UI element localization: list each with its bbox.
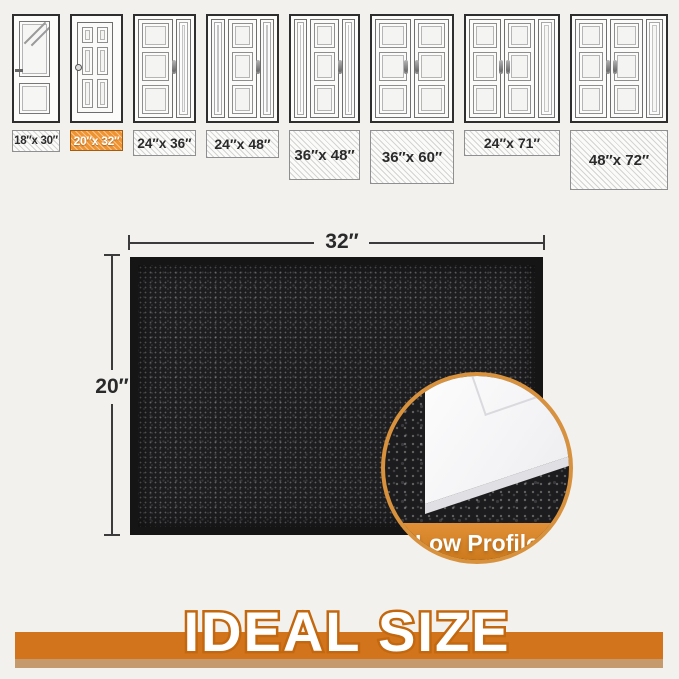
leaf [310, 19, 339, 118]
panel [614, 52, 638, 81]
mat-width-label: 32″ [313, 230, 371, 254]
panel [232, 85, 254, 114]
side [646, 19, 663, 118]
panel [142, 85, 169, 114]
cell [97, 47, 108, 76]
handle [506, 60, 510, 72]
leaf [138, 19, 173, 118]
handle [338, 60, 342, 72]
side [211, 19, 225, 118]
handle [172, 60, 176, 72]
panel [314, 52, 335, 81]
door-illustration [70, 14, 123, 123]
panel [473, 85, 497, 114]
side [294, 19, 307, 118]
leaf [469, 19, 501, 118]
handle [256, 60, 260, 72]
panel [314, 23, 335, 48]
depth-dim-tick-bottom [104, 534, 120, 536]
width-dim-tick-left [128, 235, 130, 250]
panel [614, 23, 638, 48]
cell [82, 47, 93, 76]
mat-size-label: 24″x 48″ [206, 130, 279, 158]
cell [97, 79, 108, 108]
side [176, 19, 191, 118]
cell [97, 27, 108, 43]
sinner [214, 22, 222, 115]
handle [404, 60, 408, 72]
sinner [649, 22, 660, 115]
handle [606, 60, 610, 72]
drow [135, 16, 194, 121]
depth-dim-line-top [111, 256, 113, 370]
sinner [263, 22, 271, 115]
drow [572, 16, 666, 121]
sinner [179, 22, 188, 115]
side [260, 19, 274, 118]
depth-dim-line-bottom [111, 404, 113, 534]
sinner [541, 22, 552, 115]
door-panel-groove [461, 372, 573, 416]
door-size-option: 20″x 32″ [70, 14, 123, 151]
ideal-size-banner-shadow [15, 659, 663, 668]
gwindow [19, 21, 50, 77]
panel [508, 85, 532, 114]
panel [418, 85, 446, 114]
panel [379, 85, 407, 114]
panel [418, 52, 446, 81]
ideal-size-title: IDEAL SIZE [0, 596, 679, 660]
door-illustration [133, 14, 196, 123]
handle [415, 60, 419, 72]
cell [82, 79, 93, 108]
mat-size-label: 24″x 71″ [464, 130, 560, 156]
panel [579, 52, 603, 81]
leaf [228, 19, 258, 118]
side [538, 19, 555, 118]
door-illustration [370, 14, 454, 123]
door-illustration [464, 14, 560, 123]
drow [208, 16, 277, 121]
low-profile-caption: Low Profile [415, 530, 539, 557]
mat-size-label: 24″x 36″ [133, 130, 196, 156]
doormat-size-infographic: 18″x 30″20″x 32″24″x 36″24″x 48″36″x 48″… [0, 0, 679, 679]
panel [579, 85, 603, 114]
width-dim-line-right [369, 242, 544, 244]
sixgrid [77, 22, 113, 113]
panel [379, 52, 407, 81]
door-size-option: 24″x 48″ [206, 14, 279, 158]
handle [499, 60, 503, 72]
door-size-option: 36″x 60″ [370, 14, 454, 184]
handle [15, 69, 23, 72]
door-illustration [570, 14, 668, 123]
drow [466, 16, 558, 121]
door-illustration [289, 14, 360, 123]
gpanel [19, 83, 50, 114]
panel [473, 23, 497, 48]
panel [473, 52, 497, 81]
mat-size-label: 48″x 72″ [570, 130, 668, 190]
sinner [297, 22, 304, 115]
panel [579, 23, 603, 48]
drow [372, 16, 452, 121]
low-profile-badge: Low Profile [381, 523, 573, 564]
panel [142, 52, 169, 81]
ideal-size-text: IDEAL SIZE [183, 600, 510, 660]
mat-size-label: 36″x 48″ [289, 130, 360, 180]
width-dim-tick-right [543, 235, 545, 250]
door-size-option: 48″x 72″ [570, 14, 668, 190]
panel [614, 85, 638, 114]
mat-size-label: 18″x 30″ [12, 130, 60, 152]
door-size-guide: 18″x 30″20″x 32″24″x 36″24″x 48″36″x 48″… [12, 14, 668, 190]
handle [613, 60, 617, 72]
panel [142, 23, 169, 48]
panel [508, 23, 532, 48]
width-dim-line-left [129, 242, 314, 244]
mat-size-label-highlighted: 20″x 32″ [70, 130, 123, 151]
cell [82, 27, 93, 43]
door-size-option: 18″x 30″ [12, 14, 60, 152]
leaf [575, 19, 607, 118]
panel [232, 52, 254, 81]
door-illustration [12, 14, 60, 123]
sinner [345, 22, 352, 115]
depth-dim-tick-top [104, 254, 120, 256]
panel [379, 23, 407, 48]
door-size-option: 36″x 48″ [289, 14, 360, 180]
panel [232, 23, 254, 48]
door-size-option: 24″x 36″ [133, 14, 196, 156]
door-illustration [206, 14, 279, 123]
drow [291, 16, 358, 121]
door-size-option: 24″x 71″ [464, 14, 560, 156]
panel [508, 52, 532, 81]
panel [418, 23, 446, 48]
panel [314, 85, 335, 114]
side [342, 19, 355, 118]
mat-size-label: 36″x 60″ [370, 130, 454, 184]
low-profile-inset: Low Profile [381, 372, 573, 564]
